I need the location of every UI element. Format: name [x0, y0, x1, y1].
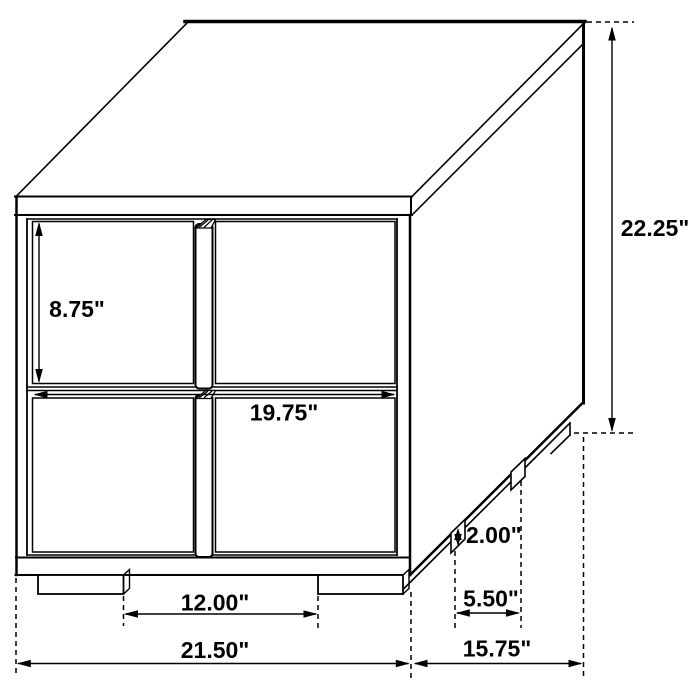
front-foot-right-face [318, 575, 403, 594]
dimension-label-drawer-front-height: 8.75" [49, 296, 105, 322]
upper-handle-bar [196, 224, 213, 389]
arrowhead-left-icon [34, 391, 48, 399]
dimension-label-overall-height: 22.25" [621, 215, 689, 241]
side-panel [410, 22, 584, 575]
front-foot-left [38, 570, 130, 595]
dimension-side-feet-spacing: 5.50" [455, 481, 521, 628]
side-bottom-edge [410, 403, 583, 575]
arrowhead-up-icon [608, 27, 616, 41]
top-panel-right-underside-edge [412, 43, 584, 215]
nightstand-dimension-drawing: 8.75" 22.25" 19.75" 12.00" [0, 0, 700, 700]
drawer-front-panel-bottom-left [33, 398, 194, 552]
top-panel [15, 22, 585, 216]
side-foot-back [511, 459, 525, 491]
arrowhead-down-icon [608, 418, 616, 432]
drawer-handles [196, 220, 216, 558]
arrowhead-left-icon [414, 660, 428, 668]
arrowhead-right-icon [304, 610, 318, 618]
drawer-front-panel-top-right [216, 222, 396, 384]
plinth-side-bottom-edge [403, 423, 570, 590]
arrowhead-left-icon [124, 610, 138, 618]
drawer-handle-upper [196, 220, 216, 389]
top-left-edge [16, 23, 187, 197]
front-foot-left-face [38, 575, 124, 594]
dimension-label-overall-depth: 15.75" [463, 636, 531, 662]
dimension-overall-height: 22.25" [574, 22, 689, 433]
dimension-overall-depth: 15.75" [414, 437, 584, 676]
dimension-label-side-feet-spacing: 5.50" [463, 586, 519, 612]
arrowhead-left-icon [17, 660, 31, 668]
dimension-front-feet-spacing: 12.00" [124, 590, 319, 629]
dimension-diagram-canvas: 8.75" 22.25" 19.75" 12.00" [0, 0, 700, 700]
arrowhead-right-icon [396, 660, 410, 668]
dimension-label-front-feet-spacing: 12.00" [181, 590, 249, 616]
arrowhead-right-icon [382, 391, 396, 399]
dimension-label-overall-width: 21.50" [181, 637, 249, 663]
plinth-back-lower-edge [551, 435, 570, 454]
drawer-handle-lower [196, 391, 216, 558]
front-foot-right [318, 570, 409, 595]
dimension-label-drawer-front-width: 19.75" [250, 400, 318, 426]
arrowhead-right-icon [569, 660, 583, 668]
dimension-label-foot-height: 2.00" [466, 522, 522, 548]
lower-handle-bar [196, 395, 213, 557]
top-right-edge [412, 23, 584, 197]
